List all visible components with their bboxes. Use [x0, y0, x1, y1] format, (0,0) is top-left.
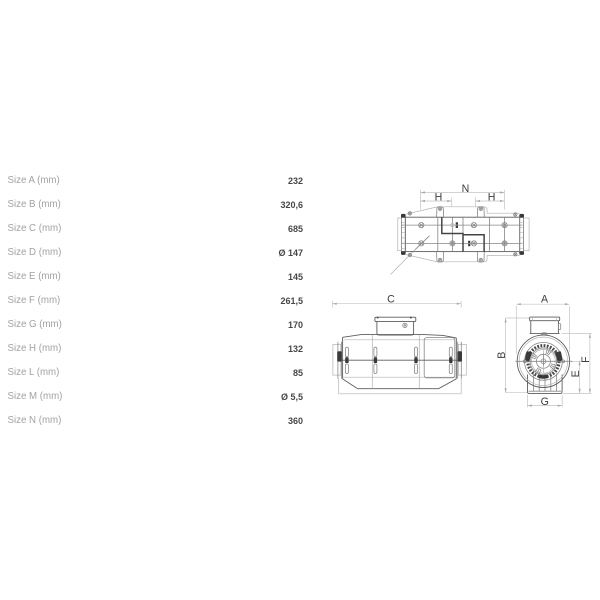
svg-text:F: F: [580, 356, 592, 363]
svg-text:G: G: [541, 396, 549, 408]
svg-text:N: N: [462, 183, 470, 195]
svg-text:E: E: [570, 370, 582, 377]
svg-text:A: A: [541, 294, 549, 306]
svg-text:B: B: [496, 352, 508, 359]
svg-text:H: H: [435, 191, 443, 203]
svg-text:C: C: [387, 294, 395, 306]
svg-text:H: H: [488, 191, 496, 203]
